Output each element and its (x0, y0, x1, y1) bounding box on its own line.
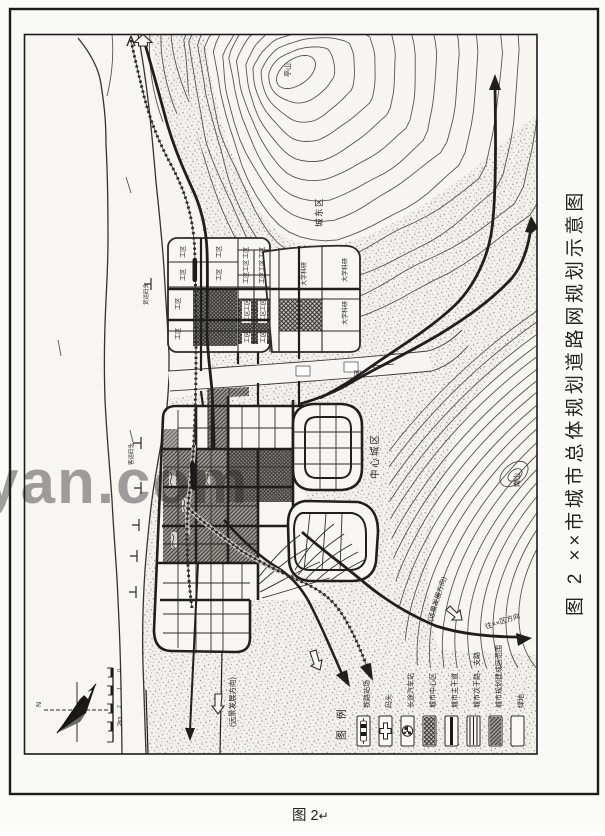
svg-text:N: N (36, 702, 43, 707)
svg-text:亭山: 亭山 (283, 63, 292, 77)
svg-text:工区: 工区 (180, 246, 187, 258)
svg-text:城市规划建成区范围: 城市规划建成区范围 (494, 645, 503, 708)
svg-text:绿地: 绿地 (516, 694, 525, 708)
svg-text:工区: 工区 (216, 246, 223, 258)
svg-text:城市中心区: 城市中心区 (428, 673, 437, 708)
svg-text:工区: 工区 (259, 260, 266, 272)
svg-text:南山: 南山 (512, 473, 521, 487)
svg-text:图 2↵: 图 2↵ (292, 808, 329, 824)
svg-text:工区: 工区 (180, 269, 187, 281)
svg-text:城东区: 城东区 (314, 197, 324, 227)
svg-text:长途汽车站: 长途汽车站 (406, 673, 415, 708)
svg-text:0: 0 (117, 669, 123, 672)
svg-text:工区: 工区 (259, 272, 266, 284)
svg-text:工区: 工区 (175, 298, 182, 310)
svg-text:大学科研: 大学科研 (341, 301, 349, 325)
svg-text:工区: 工区 (244, 331, 251, 343)
svg-text:2: 2 (117, 705, 123, 708)
svg-text:码头: 码头 (384, 694, 393, 708)
svg-text:图 2 ××市城市总体规划道路网规划示意图: 图 2 ××市城市总体规划道路网规划示意图 (564, 189, 586, 616)
svg-text:yan.com: yan.com (0, 448, 250, 517)
svg-text:城市主干道: 城市主干道 (450, 673, 459, 708)
svg-text:1: 1 (117, 687, 123, 690)
svg-text:大学科研: 大学科研 (300, 262, 308, 286)
svg-text:城市次干路、支路: 城市次干路、支路 (472, 652, 481, 708)
svg-text:(远景发展方向): (远景发展方向) (227, 677, 237, 727)
svg-text:工区: 工区 (243, 272, 250, 284)
svg-text:工区: 工区 (243, 247, 250, 259)
svg-text:工区: 工区 (260, 299, 267, 311)
svg-text:工区: 工区 (244, 299, 251, 311)
svg-text:工区: 工区 (216, 269, 223, 281)
svg-text:工区: 工区 (260, 331, 267, 343)
svg-text:工区: 工区 (175, 328, 182, 340)
svg-text:3km: 3km (117, 717, 123, 726)
svg-text:工区: 工区 (243, 260, 250, 272)
svg-text:图 例: 图 例 (335, 705, 348, 740)
svg-text:铁路站场: 铁路站场 (362, 680, 371, 708)
svg-text:货运码头: 货运码头 (142, 282, 150, 305)
svg-text:中心城区: 中心城区 (369, 433, 381, 479)
svg-text:工区: 工区 (259, 247, 266, 259)
svg-text:大学科研: 大学科研 (341, 258, 349, 282)
